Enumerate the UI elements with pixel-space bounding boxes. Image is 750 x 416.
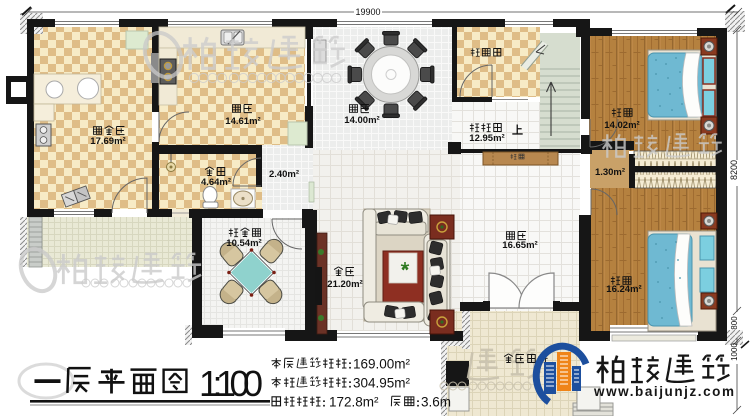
svg-text:14.61m²: 14.61m² bbox=[225, 116, 260, 127]
svg-text:14.02m²: 14.02m² bbox=[604, 120, 639, 131]
svg-text:19900: 19900 bbox=[355, 7, 380, 17]
svg-text:14.00m²: 14.00m² bbox=[344, 115, 379, 126]
svg-text:3.6m: 3.6m bbox=[421, 395, 451, 410]
svg-text:10.54m²: 10.54m² bbox=[226, 238, 261, 249]
svg-text::: : bbox=[416, 396, 420, 410]
svg-text:1:100: 1:100 bbox=[199, 363, 263, 404]
svg-text:16.24m²: 16.24m² bbox=[606, 284, 641, 295]
svg-text::: : bbox=[322, 396, 326, 410]
svg-text:8200: 8200 bbox=[729, 160, 739, 180]
svg-text:2.40m²: 2.40m² bbox=[269, 169, 299, 180]
svg-text::: : bbox=[348, 358, 352, 372]
svg-text:169.00m²: 169.00m² bbox=[353, 357, 411, 372]
svg-text:304.95m²: 304.95m² bbox=[353, 376, 411, 391]
svg-text:172.8m²: 172.8m² bbox=[329, 395, 379, 410]
svg-text:12.95m²: 12.95m² bbox=[469, 133, 504, 144]
svg-text:16.65m²: 16.65m² bbox=[502, 240, 537, 251]
svg-text:800: 800 bbox=[730, 316, 739, 330]
svg-text:1000: 1000 bbox=[730, 343, 739, 361]
svg-text:1.30m²: 1.30m² bbox=[595, 167, 625, 178]
svg-text:21.20m²: 21.20m² bbox=[327, 279, 362, 290]
svg-text:17.69m²: 17.69m² bbox=[90, 136, 125, 147]
svg-text:4.64m²: 4.64m² bbox=[201, 177, 231, 188]
svg-text::: : bbox=[348, 377, 352, 391]
